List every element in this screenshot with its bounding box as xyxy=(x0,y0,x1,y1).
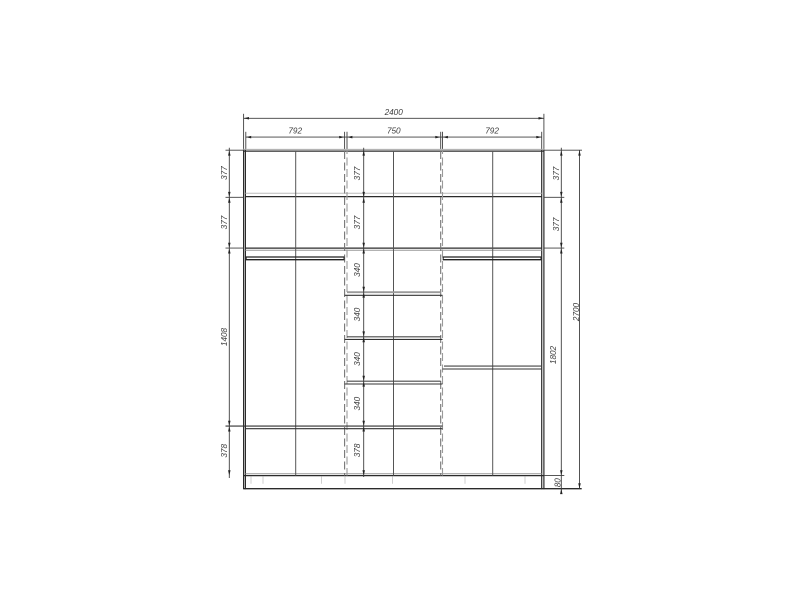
svg-text:377: 377 xyxy=(552,166,561,180)
svg-text:2400: 2400 xyxy=(384,108,404,117)
svg-text:377: 377 xyxy=(220,215,229,229)
svg-text:1802: 1802 xyxy=(549,345,558,364)
svg-text:340: 340 xyxy=(353,263,362,277)
svg-text:2700: 2700 xyxy=(572,302,581,322)
svg-text:377: 377 xyxy=(353,215,362,229)
svg-text:792: 792 xyxy=(485,127,499,136)
svg-text:1408: 1408 xyxy=(220,327,229,346)
svg-text:377: 377 xyxy=(220,166,229,180)
svg-text:792: 792 xyxy=(288,127,302,136)
svg-text:378: 378 xyxy=(353,443,362,457)
svg-text:377: 377 xyxy=(552,217,561,231)
svg-text:377: 377 xyxy=(353,166,362,180)
svg-text:340: 340 xyxy=(353,307,362,321)
svg-text:340: 340 xyxy=(353,352,362,366)
svg-text:750: 750 xyxy=(387,127,401,136)
svg-text:340: 340 xyxy=(353,396,362,410)
svg-text:80: 80 xyxy=(554,478,563,488)
svg-text:378: 378 xyxy=(220,444,229,458)
